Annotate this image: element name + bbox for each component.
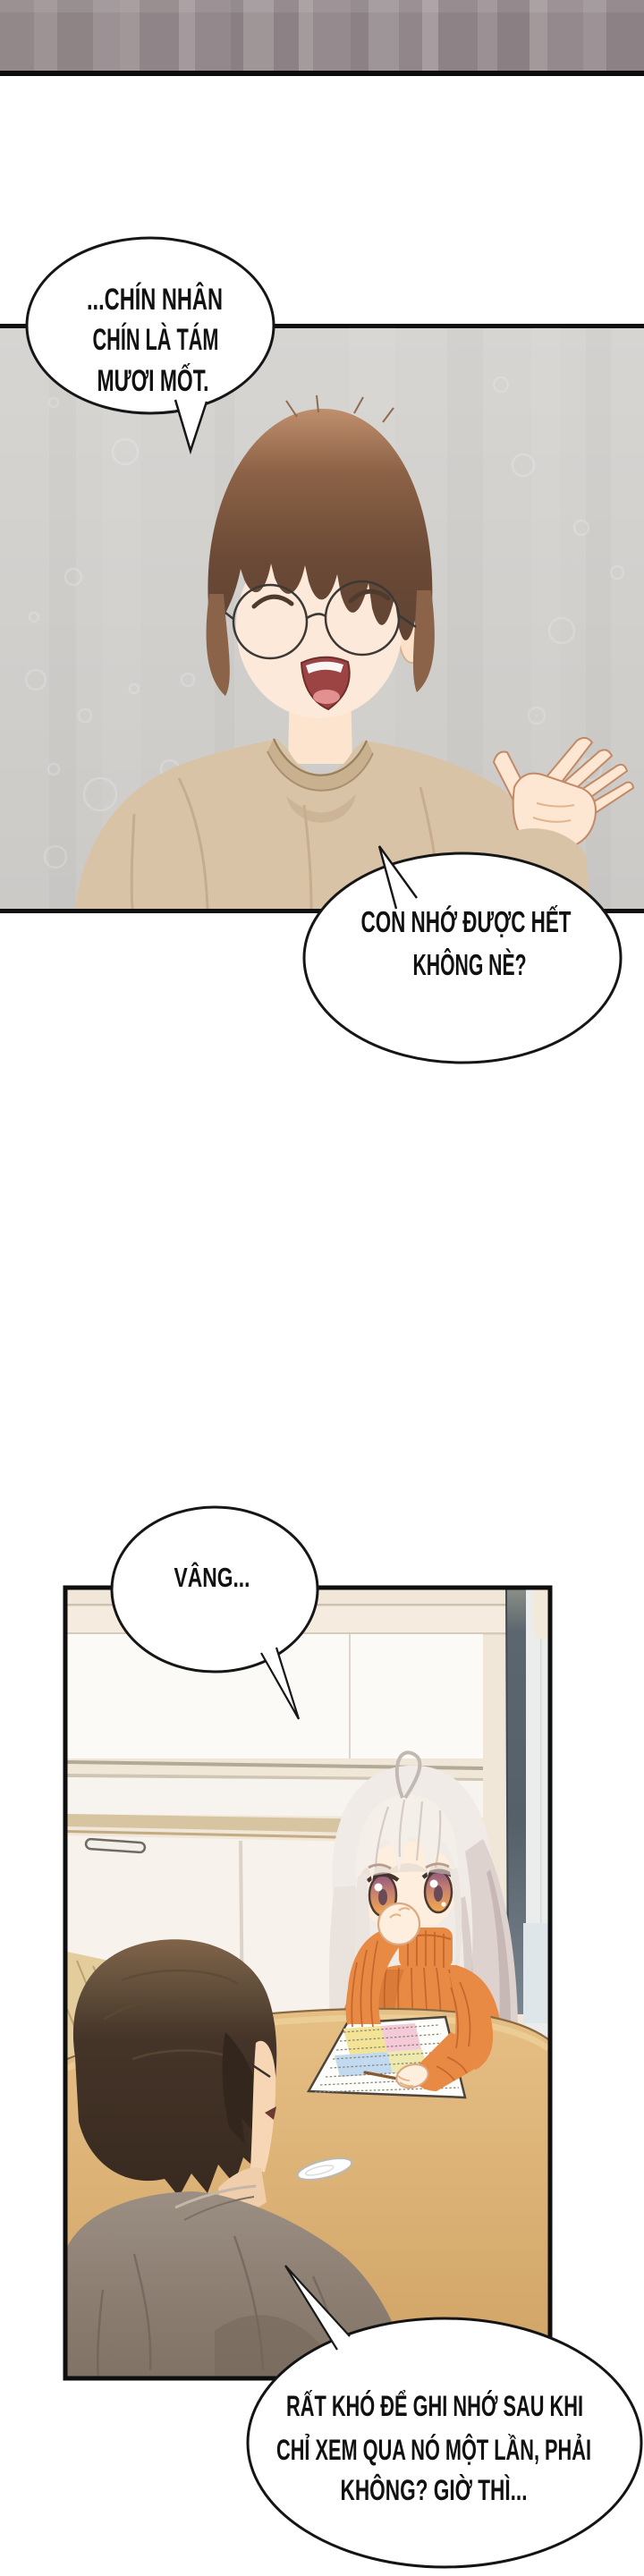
svg-text:...CHÍN NHÂN: ...CHÍN NHÂN	[87, 283, 223, 317]
svg-text:CON NHỚ ĐƯỢC HẾT: CON NHỚ ĐƯỢC HẾT	[361, 905, 572, 938]
svg-text:KHÔNG? GIỜ THÌ...: KHÔNG? GIỜ THÌ...	[341, 2474, 528, 2506]
svg-text:MƯƠI MỐT.: MƯƠI MỐT.	[97, 363, 209, 398]
svg-text:VÂNG...: VÂNG...	[174, 1561, 250, 1593]
svg-text:RẤT KHÓ ĐỂ GHI NHỚ SAU KHI: RẤT KHÓ ĐỂ GHI NHỚ SAU KHI	[286, 2390, 583, 2422]
svg-text:KHÔNG NÈ?: KHÔNG NÈ?	[413, 947, 527, 981]
svg-text:CHỈ XEM QUA NÓ MỘT LẦN, PHẢI: CHỈ XEM QUA NÓ MỘT LẦN, PHẢI	[276, 2434, 591, 2466]
svg-text:CHÍN LÀ TÁM: CHÍN LÀ TÁM	[93, 323, 219, 357]
